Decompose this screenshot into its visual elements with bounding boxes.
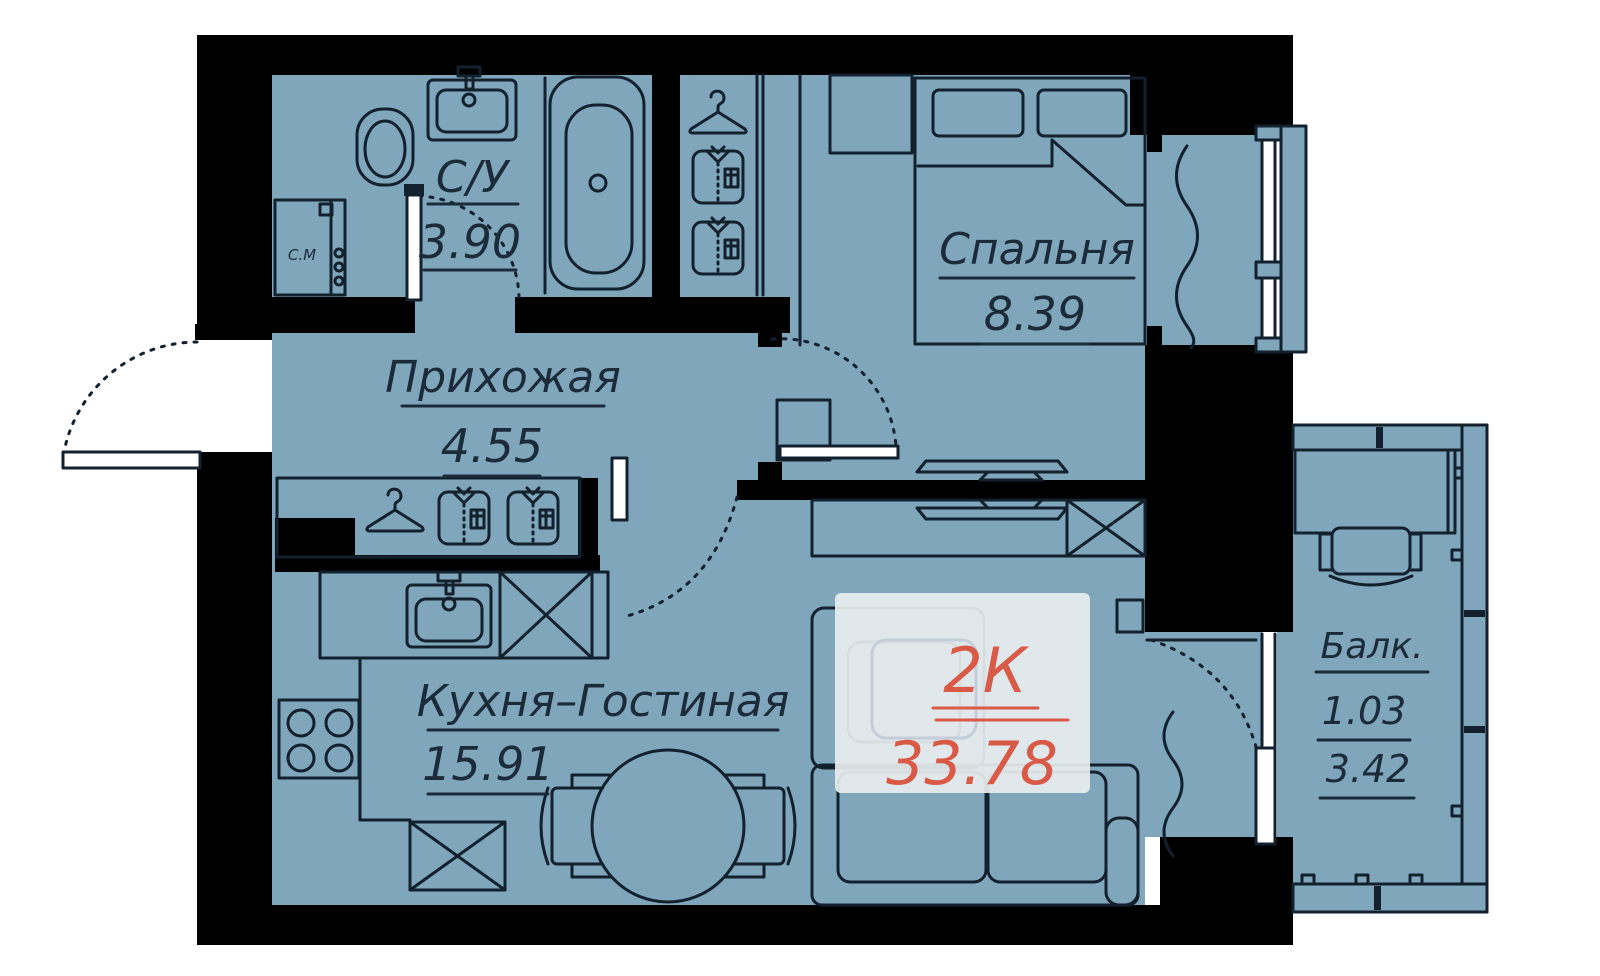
kitchen-living-label: Кухня–Гостиная [417,676,790,727]
door-arc-icon [64,342,197,452]
washing-machine-label: С.М [288,246,316,264]
tv-icon-living [917,508,1067,519]
wall-bottom-right-block [1160,837,1293,945]
bay-jamb-bottom [1147,326,1162,348]
bathroom-area-label: 3.90 [419,215,521,269]
wall-left-upper [197,35,272,340]
balcony-coef-label: 1.03 [1322,689,1407,733]
wall-tv [737,480,1145,500]
wall-right-block [1145,345,1293,632]
tv-icon-bedroom [917,461,1067,472]
balcony-area-label: 3.42 [1326,747,1411,791]
entrance-door [63,342,200,468]
balcony-door-leaf [1256,748,1275,844]
balcony-label: Балк. [1321,626,1424,667]
wall-top-right-block [1130,35,1293,135]
hallway-label: Прихожая [385,352,621,403]
wall-left-lower [197,452,272,945]
window-sill [1281,126,1306,352]
bedroom-door-hinge-block [758,333,782,347]
window-bay-floor [1145,108,1262,348]
bedroom-area-label: 8.39 [984,287,1086,341]
bedroom-label: Спальня [939,224,1135,275]
balcony-desk-icon [1295,450,1455,533]
floor-plan: С.М [0,0,1600,976]
kitchen-door-jamb [612,458,627,520]
bay-jamb-top [1147,130,1162,152]
dining-table-icon [592,750,744,902]
floor-plan-page: С.М [0,0,1600,976]
wall-tv-hinge-block [758,462,782,480]
bathroom-label: С/У [436,152,512,203]
kitchen-living-area-label: 15.91 [422,737,554,791]
wall-bath-bottom-right [515,297,790,333]
hallway-area-label: 4.55 [441,419,543,473]
apartment-badge: 2К 33.78 [835,593,1090,799]
wall-bottom [197,905,1293,945]
bedroom-door-leaf [780,446,898,458]
wall-bath-bottom-left [272,297,415,333]
entrance-jamb-top [195,324,219,340]
entrance-door-leaf [63,452,200,468]
wall-bath-wardrobe [652,75,680,300]
apartment-type-label: 2К [943,634,1029,707]
wall-top [197,35,1160,75]
apartment-area-label: 33.78 [886,729,1058,799]
bedroom-window-icon [1256,126,1306,352]
